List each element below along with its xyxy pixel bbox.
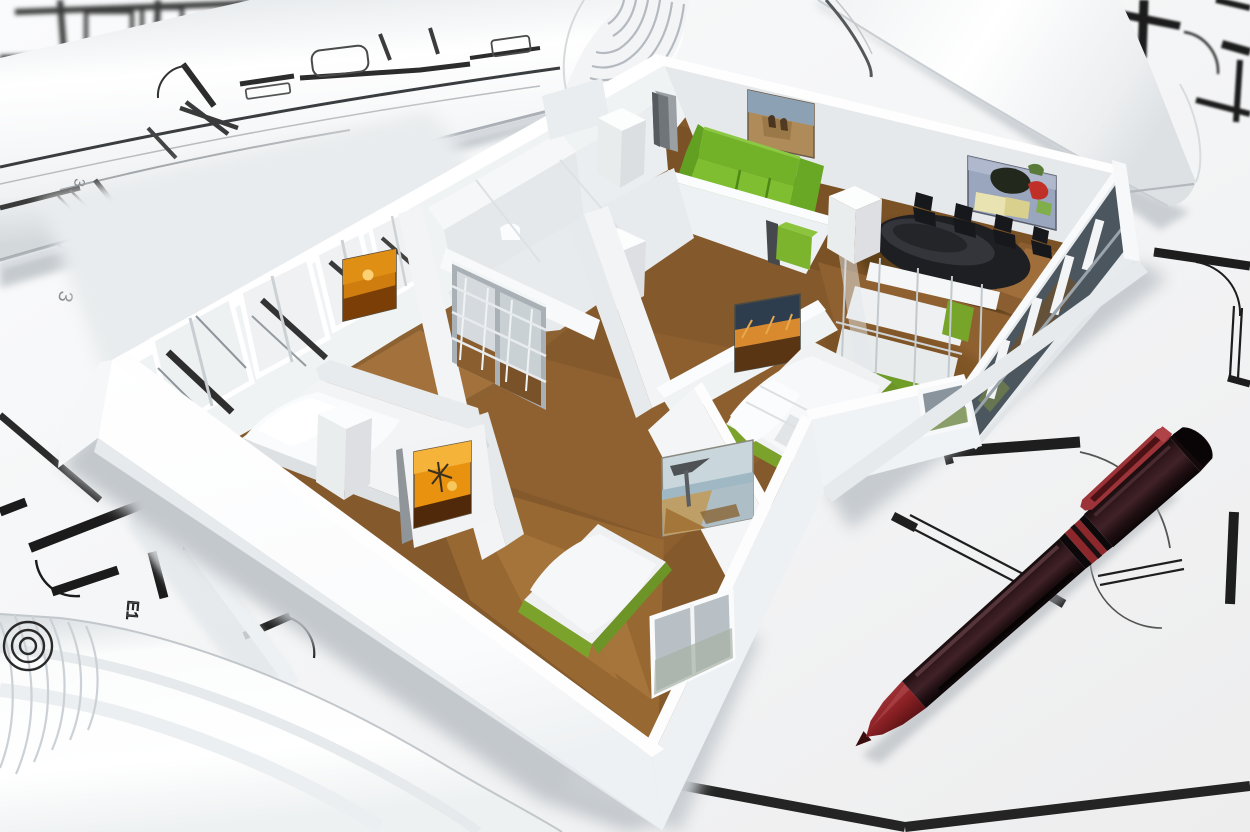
- svg-text:E1: E1: [122, 600, 141, 621]
